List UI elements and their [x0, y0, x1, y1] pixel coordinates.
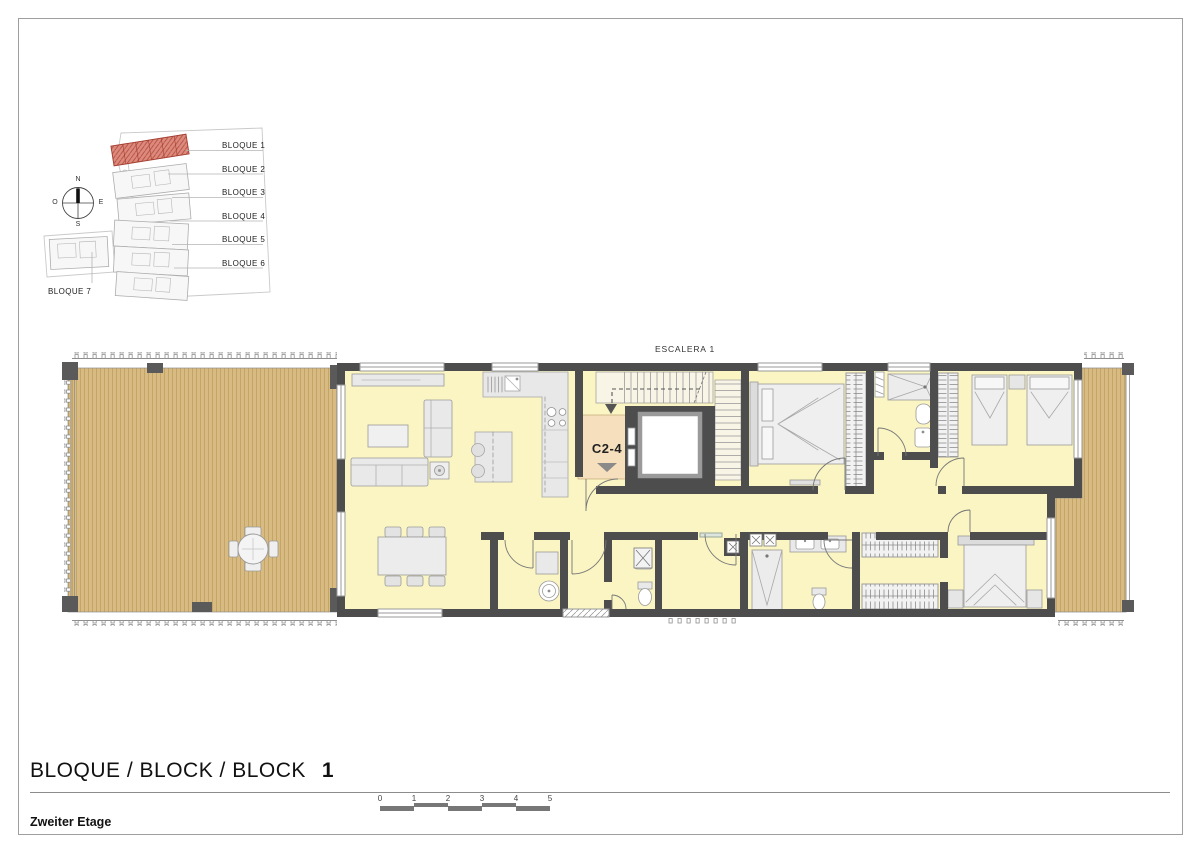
glass-door: [700, 533, 722, 537]
stool: [472, 444, 485, 457]
pillow: [975, 377, 1004, 389]
scale-tick: 3: [480, 794, 484, 803]
pillow: [762, 389, 773, 421]
unit-label: C2-4: [582, 441, 632, 456]
dining-chair: [407, 527, 423, 537]
keymap-highlighted-block-1: [111, 134, 189, 166]
stair-label: ESCALERA 1: [625, 344, 745, 354]
drawing-sheet: BLOQUE 1 BLOQUE 2 BLOQUE 3 BLOQUE 4 BLOQ…: [0, 0, 1200, 849]
title-block: BLOQUE / BLOCK / BLOCK 1: [30, 759, 334, 783]
nightstand: [1027, 590, 1042, 608]
wardrobe: [862, 584, 938, 609]
floor-plan-drawing: [0, 0, 1200, 849]
sheet-title: BLOQUE / BLOCK / BLOCK: [30, 759, 306, 783]
dining-table: [378, 537, 446, 575]
stool: [472, 465, 485, 478]
bidet: [916, 404, 931, 424]
wardrobe: [846, 373, 866, 491]
bed-headboard: [750, 382, 758, 466]
scale-tick: 4: [514, 794, 518, 803]
sofa-3seat: [351, 458, 428, 486]
keymap-label-bloque-5: BLOQUE 5: [222, 235, 265, 244]
terrace-left: [68, 368, 337, 612]
scale-segment: [482, 803, 516, 807]
dining-chair: [407, 576, 423, 586]
scale-segment: [380, 807, 414, 811]
pillow: [1030, 377, 1069, 389]
dining-chair: [429, 527, 445, 537]
compass-south-label: S: [72, 221, 84, 228]
scale-segment: [516, 807, 550, 811]
floor-label: Zweiter Etage: [30, 815, 111, 829]
compass-west-label: O: [49, 199, 61, 206]
dining-chair: [385, 576, 401, 586]
compass-north-label: N: [72, 176, 84, 183]
bedroom-2-furniture: [938, 373, 1072, 457]
toilet: [813, 594, 825, 610]
nightstand: [1009, 375, 1025, 389]
compass-rose: [63, 188, 94, 219]
scale-tick: 2: [446, 794, 450, 803]
title-rule: [30, 792, 1170, 793]
keymap-label-bloque-4: BLOQUE 4: [222, 212, 265, 221]
door-mat: [790, 480, 820, 485]
keymap-label-bloque-3: BLOQUE 3: [222, 188, 265, 197]
scale-segment: [414, 803, 448, 807]
pillow: [762, 427, 773, 459]
keymap-label-bloque-2: BLOQUE 2: [222, 165, 265, 174]
scale-tick: 5: [548, 794, 552, 803]
dining-chair: [385, 527, 401, 537]
nightstand: [948, 590, 963, 608]
scale-tick: 1: [412, 794, 416, 803]
dining-chair: [429, 576, 445, 586]
sofa-2seat: [424, 400, 452, 457]
scale-bar: 0 1 2 3 4 5: [380, 794, 550, 816]
elevator: [625, 406, 715, 486]
double-bed: [964, 545, 1026, 607]
shower: [752, 550, 782, 612]
counter: [536, 552, 558, 574]
toilet: [639, 589, 652, 606]
toilet-tank: [638, 582, 652, 589]
scale-tick: 0: [378, 794, 382, 803]
keymap-label-bloque-7: BLOQUE 7: [48, 287, 91, 296]
rug: [368, 425, 408, 447]
sheet-block-number: 1: [322, 759, 334, 783]
compass-north-needle: [76, 189, 80, 204]
scale-segment: [448, 807, 482, 811]
compass-east-label: E: [95, 199, 107, 206]
keymap-label-bloque-1: BLOQUE 1: [222, 141, 265, 150]
keymap-label-bloque-6: BLOQUE 6: [222, 259, 265, 268]
wardrobe: [938, 373, 958, 457]
floor-plan: [62, 352, 1134, 626]
